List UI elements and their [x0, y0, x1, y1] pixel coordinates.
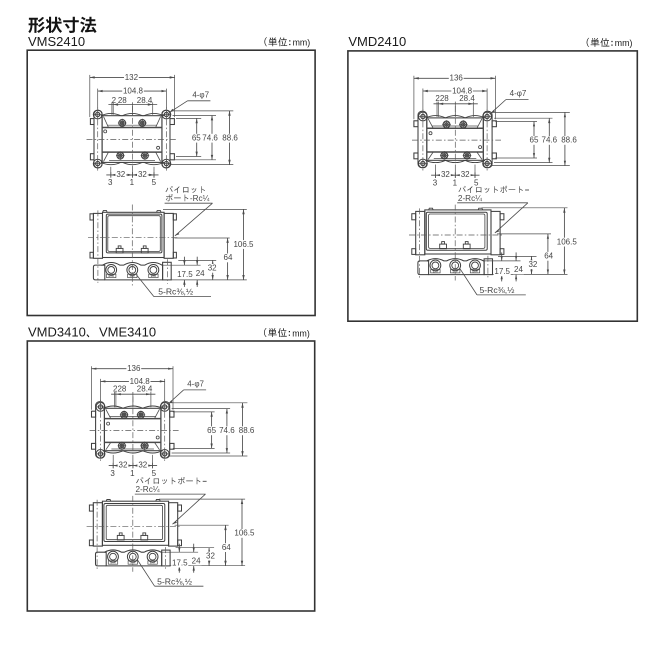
svg-text:28: 28: [118, 96, 127, 105]
svg-text:EXH: EXH: [151, 274, 156, 278]
svg-text:17.5: 17.5: [177, 270, 193, 279]
svg-text:32: 32: [441, 170, 450, 179]
svg-text:64: 64: [222, 543, 231, 552]
svg-text:EXH: EXH: [109, 274, 114, 278]
svg-text:65: 65: [192, 134, 201, 143]
svg-text:32: 32: [116, 170, 125, 179]
svg-text:106.5: 106.5: [234, 529, 255, 538]
svg-text:4-φ7: 4-φ7: [510, 89, 527, 98]
svg-text:5-Rc⅜,½: 5-Rc⅜,½: [157, 577, 192, 587]
svg-text:28.4: 28.4: [137, 384, 153, 393]
svg-text:5: 5: [474, 179, 479, 188]
svg-text:65: 65: [207, 426, 216, 435]
svg-text:5-Rc⅜,½: 5-Rc⅜,½: [480, 285, 515, 295]
svg-text:3: 3: [110, 469, 115, 478]
svg-text:2: 2: [112, 96, 117, 105]
svg-text:4-φ7: 4-φ7: [192, 90, 209, 99]
svg-text:VMS2410: VMS2410: [28, 34, 85, 49]
svg-text:3: 3: [433, 179, 438, 188]
svg-text:17.5: 17.5: [494, 267, 510, 276]
svg-text:EXH: EXH: [150, 561, 155, 565]
svg-text:EXH: EXH: [110, 561, 115, 565]
svg-text:5: 5: [152, 469, 157, 478]
svg-text:5-Rc⅜,½: 5-Rc⅜,½: [158, 287, 193, 297]
svg-text:mm): mm): [293, 38, 311, 48]
svg-text:1: 1: [130, 178, 135, 187]
svg-text:17.5: 17.5: [172, 558, 188, 567]
svg-text:VMD3410: VMD3410: [28, 325, 86, 340]
svg-text:104.8: 104.8: [123, 87, 144, 96]
svg-text:74.6: 74.6: [219, 426, 235, 435]
svg-text:28.4: 28.4: [137, 96, 153, 105]
svg-text:VME3410: VME3410: [99, 325, 156, 340]
svg-text:32: 32: [119, 461, 128, 470]
svg-text:32: 32: [528, 260, 537, 269]
svg-text:136: 136: [127, 364, 141, 373]
svg-text:64: 64: [224, 253, 233, 262]
svg-text:5: 5: [152, 178, 157, 187]
svg-text:106.5: 106.5: [557, 237, 578, 246]
svg-text:132: 132: [125, 73, 139, 82]
svg-text:88.6: 88.6: [239, 426, 255, 435]
svg-text:2-Rc¼: 2-Rc¼: [136, 485, 160, 494]
svg-text:88.6: 88.6: [222, 134, 238, 143]
svg-text:VMD2410: VMD2410: [348, 34, 406, 49]
svg-text:64: 64: [544, 252, 553, 261]
svg-text:24: 24: [196, 269, 205, 278]
svg-text:32: 32: [206, 551, 215, 560]
svg-text:2-Rc¼: 2-Rc¼: [458, 194, 482, 203]
svg-text:106.5: 106.5: [233, 240, 254, 249]
svg-text:32: 32: [138, 170, 147, 179]
svg-text:mm): mm): [292, 328, 310, 338]
svg-text:EXH: EXH: [433, 269, 438, 273]
svg-text:28.4: 28.4: [459, 94, 475, 103]
svg-text:4-φ7: 4-φ7: [187, 379, 204, 388]
svg-text:74.6: 74.6: [202, 134, 218, 143]
svg-text:24: 24: [192, 556, 201, 565]
svg-text:32: 32: [208, 264, 217, 273]
svg-text:74.6: 74.6: [542, 136, 558, 145]
svg-text:-Rc¼: -Rc¼: [190, 194, 210, 203]
svg-text:32: 32: [461, 170, 470, 179]
svg-text:mm): mm): [615, 38, 633, 48]
svg-text:136: 136: [450, 74, 464, 83]
svg-text:32: 32: [138, 461, 147, 470]
svg-text:1: 1: [130, 469, 135, 478]
svg-text:EXH: EXH: [472, 269, 477, 273]
svg-text:65: 65: [530, 136, 539, 145]
svg-text:28: 28: [117, 384, 126, 393]
svg-text:3: 3: [108, 178, 113, 187]
svg-text:1: 1: [453, 179, 458, 188]
svg-text:24: 24: [514, 265, 523, 274]
svg-text:28: 28: [440, 94, 449, 103]
svg-text:88.6: 88.6: [561, 136, 577, 145]
